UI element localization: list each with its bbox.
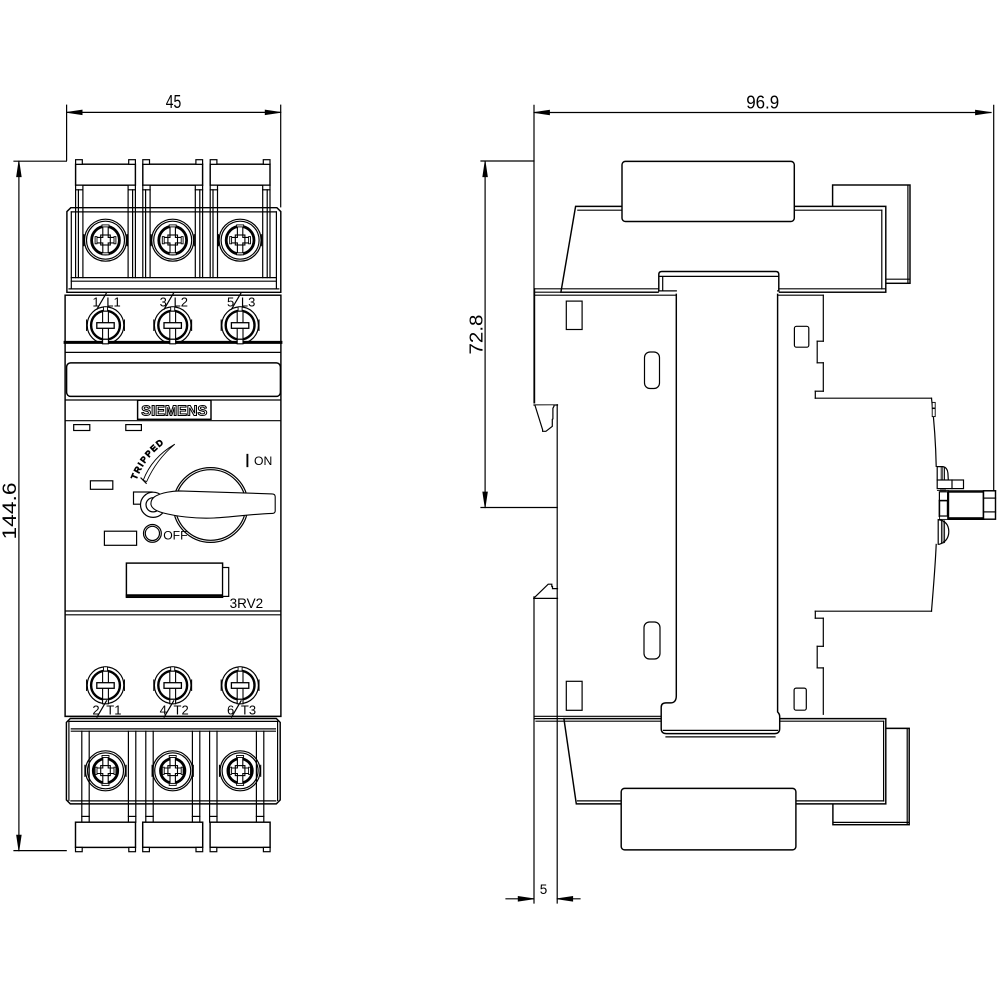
svg-text:144.6: 144.6 bbox=[0, 483, 21, 540]
svg-text:45: 45 bbox=[166, 92, 182, 112]
svg-text:96.9: 96.9 bbox=[746, 93, 779, 113]
svg-text:ON: ON bbox=[254, 454, 272, 468]
svg-text:T2: T2 bbox=[174, 703, 189, 718]
svg-text:SIEMENS: SIEMENS bbox=[141, 403, 207, 419]
svg-text:3RV2: 3RV2 bbox=[230, 596, 264, 611]
svg-text:5: 5 bbox=[540, 882, 548, 897]
svg-text:OFF: OFF bbox=[163, 529, 187, 543]
svg-text:T1: T1 bbox=[106, 703, 121, 718]
svg-text:T3: T3 bbox=[241, 703, 256, 718]
svg-text:72.8: 72.8 bbox=[467, 315, 487, 355]
